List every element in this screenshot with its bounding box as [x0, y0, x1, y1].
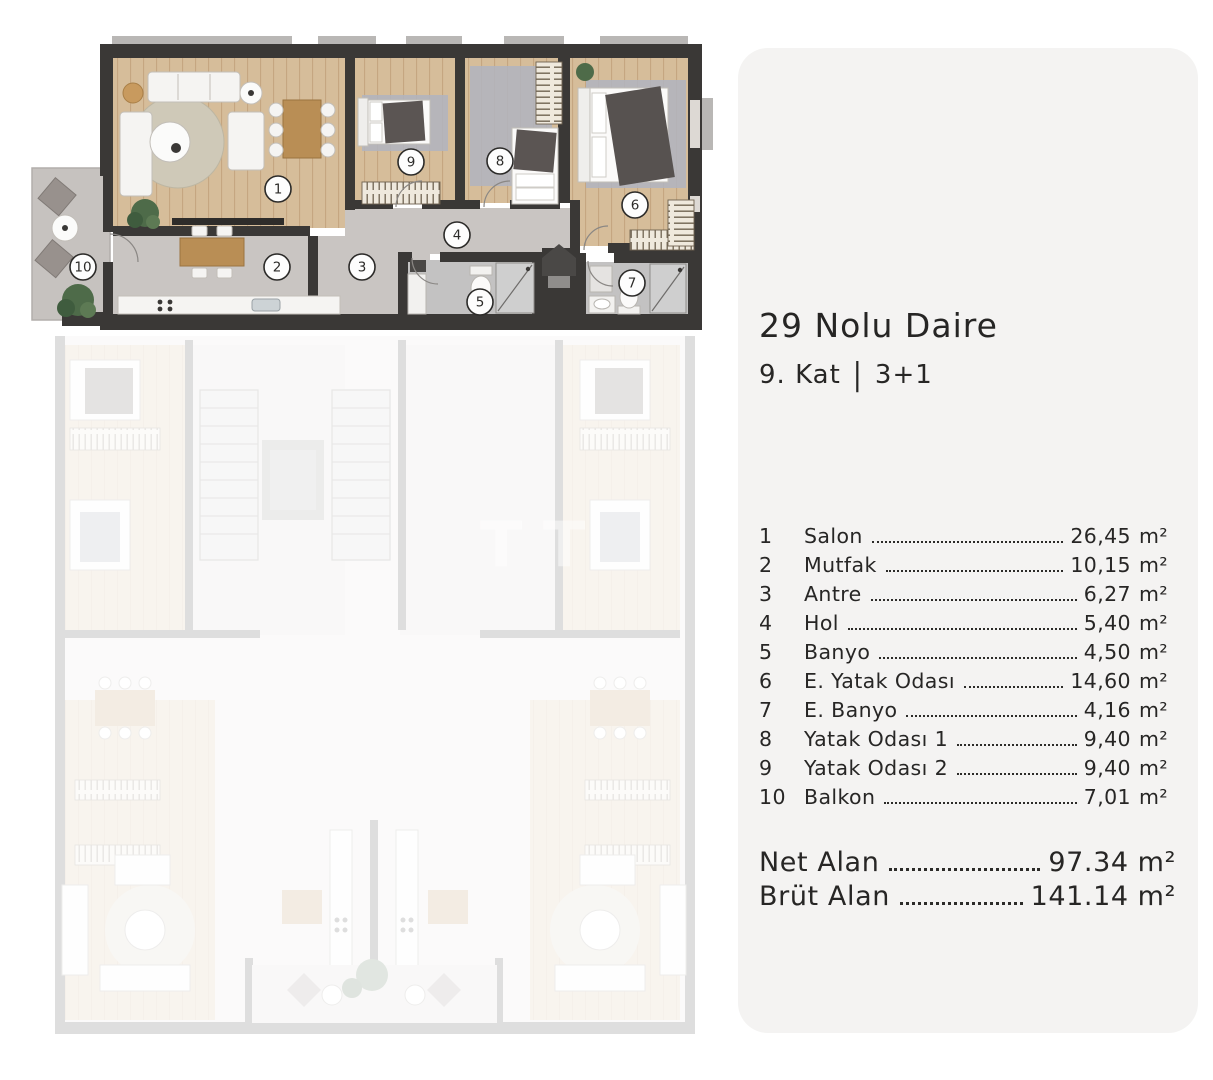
room-name: Yatak Odası 1 [804, 727, 948, 751]
dot-leader [957, 773, 1077, 775]
room-row-banyo: 5 Banyo 4,50 m² [759, 640, 1168, 669]
bedroom1-furniture [470, 62, 562, 204]
net-area-row: Net Alan 97.34 m² [759, 847, 1176, 881]
dot-leader [879, 657, 1076, 659]
room-area: 9,40 [1084, 727, 1131, 751]
room-area: 4,16 [1084, 698, 1131, 722]
room-number: 2 [759, 553, 804, 577]
gross-area-row: Brüt Alan 141.14 m² [759, 881, 1176, 915]
total-value: 97.34 [1048, 847, 1128, 878]
total-unit: m² [1138, 847, 1176, 878]
svg-text:4: 4 [453, 228, 462, 244]
room-label-9: 9 [398, 149, 424, 175]
room-area-unit: m² [1139, 611, 1168, 635]
room-area: 6,27 [1084, 582, 1131, 606]
room-name: Mutfak [804, 553, 877, 577]
dot-leader [957, 744, 1077, 746]
room-number: 7 [759, 698, 804, 722]
room-row-balkon: 10 Balkon 7,01 m² [759, 785, 1168, 814]
room-number: 9 [759, 756, 804, 780]
room-label-3: 3 [349, 254, 375, 280]
svg-text:T: T [480, 508, 522, 581]
dot-leader [848, 628, 1077, 630]
dot-leader [889, 868, 1040, 871]
room-label-2: 2 [264, 254, 290, 280]
room-name: Hol [804, 611, 839, 635]
dining-set [269, 100, 335, 158]
svg-text:8: 8 [496, 154, 505, 170]
room-area: 9,40 [1084, 756, 1131, 780]
svg-text:3: 3 [358, 260, 367, 276]
room-area: 10,15 [1070, 553, 1131, 577]
dot-leader [900, 902, 1023, 905]
room-area: 7,01 [1084, 785, 1131, 809]
svg-text:1: 1 [274, 182, 283, 198]
svg-text:6: 6 [631, 198, 640, 214]
room-name: Antre [804, 582, 862, 606]
room-number: 8 [759, 727, 804, 751]
info-panel: 29 Nolu Daire 9. Kat | 3+1 1 Salon 26,45… [738, 48, 1198, 1033]
svg-text:E: E [710, 508, 740, 581]
room-name: E. Banyo [804, 698, 897, 722]
dot-leader [871, 599, 1077, 601]
room-label-10: 10 [70, 254, 96, 280]
room-label-8: 8 [487, 148, 513, 174]
room-area-unit: m² [1139, 785, 1168, 809]
layout-type: 3+1 [875, 360, 933, 390]
apartment-subtitle: 9. Kat | 3+1 [759, 359, 1168, 390]
room-name: Yatak Odası 2 [804, 756, 948, 780]
room-row-yatak2: 9 Yatak Odası 2 9,40 m² [759, 756, 1168, 785]
total-value: 141.14 [1031, 881, 1129, 912]
room-area-unit: m² [1139, 524, 1168, 548]
room-row-antre: 3 Antre 6,27 m² [759, 582, 1168, 611]
room-area-unit: m² [1139, 727, 1168, 751]
room-area-unit: m² [1139, 698, 1168, 722]
floor-label: 9. Kat [759, 360, 841, 390]
room-area-unit: m² [1139, 640, 1168, 664]
svg-text:2: 2 [273, 260, 282, 276]
bedroom2-furniture [358, 95, 448, 204]
apartment-title: 29 Nolu Daire [759, 306, 1168, 345]
room-row-mutfak: 2 Mutfak 10,15 m² [759, 553, 1168, 582]
room-area: 5,40 [1084, 611, 1131, 635]
svg-text:9: 9 [407, 155, 416, 171]
subtitle-divider: | [853, 357, 863, 393]
dot-leader [886, 570, 1064, 572]
room-name: Banyo [804, 640, 870, 664]
page: 1 2 3 4 5 6 7 8 9 10 T T E 29 Nolu Daire… [0, 0, 1213, 1080]
window-master [690, 100, 700, 148]
area-totals: Net Alan 97.34 m² Brüt Alan 141.14 m² [759, 847, 1176, 915]
dot-leader [964, 686, 1063, 688]
room-label-1: 1 [265, 176, 291, 202]
room-row-e-banyo: 7 E. Banyo 4,16 m² [759, 698, 1168, 727]
svg-text:10: 10 [74, 260, 91, 276]
floor-plan-svg: 1 2 3 4 5 6 7 8 9 10 T T E [0, 0, 740, 1080]
room-label-4: 4 [444, 222, 470, 248]
svg-text:T: T [543, 508, 585, 581]
svg-text:5: 5 [476, 295, 485, 311]
room-number: 5 [759, 640, 804, 664]
room-number: 4 [759, 611, 804, 635]
dot-leader [906, 715, 1076, 717]
room-area: 4,50 [1084, 640, 1131, 664]
room-area-unit: m² [1139, 669, 1168, 693]
room-name: E. Yatak Odası [804, 669, 955, 693]
room-label-7: 7 [619, 270, 645, 296]
total-label: Brüt Alan [759, 881, 890, 912]
room-area: 14,60 [1070, 669, 1131, 693]
room-area-unit: m² [1139, 756, 1168, 780]
room-area-unit: m² [1139, 553, 1168, 577]
room-number: 3 [759, 582, 804, 606]
svg-text:7: 7 [628, 276, 637, 292]
faded-floor-section [55, 336, 695, 1034]
room-row-e-yatak: 6 E. Yatak Odası 14,60 m² [759, 669, 1168, 698]
room-row-yatak1: 8 Yatak Odası 1 9,40 m² [759, 727, 1168, 756]
room-number: 10 [759, 785, 804, 809]
highlighted-apartment: 1 2 3 4 5 6 7 8 9 10 [32, 36, 713, 330]
room-name: Balkon [804, 785, 875, 809]
room-row-hol: 4 Hol 5,40 m² [759, 611, 1168, 640]
total-label: Net Alan [759, 847, 879, 878]
room-row-salon: 1 Salon 26,45 m² [759, 524, 1168, 553]
room-area-unit: m² [1139, 582, 1168, 606]
room-number: 6 [759, 669, 804, 693]
room-label-5: 5 [467, 289, 493, 315]
room-area: 26,45 [1070, 524, 1131, 548]
room-label-6: 6 [622, 192, 648, 218]
dot-leader [872, 541, 1064, 543]
room-name: Salon [804, 524, 863, 548]
room-number: 1 [759, 524, 804, 548]
floor-plan: 1 2 3 4 5 6 7 8 9 10 T T E [0, 0, 740, 1080]
dot-leader [884, 802, 1076, 804]
total-unit: m² [1138, 881, 1176, 912]
room-list: 1 Salon 26,45 m² 2 Mutfak 10,15 m² 3 Ant… [759, 524, 1168, 814]
